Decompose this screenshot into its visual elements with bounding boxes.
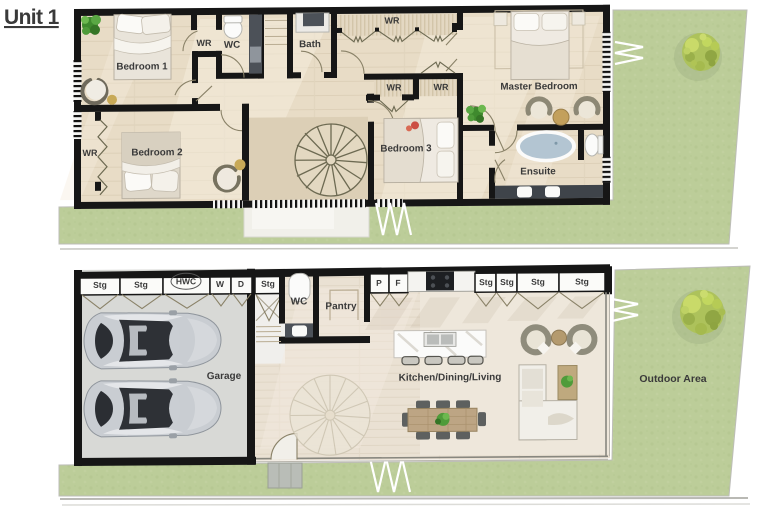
- svg-text:Master Bedroom: Master Bedroom: [500, 81, 578, 93]
- svg-text:WR: WR: [387, 82, 402, 92]
- svg-text:WR: WR: [434, 82, 449, 92]
- svg-text:Stg: Stg: [93, 280, 107, 290]
- svg-text:WR: WR: [385, 15, 400, 25]
- svg-text:Stg: Stg: [479, 277, 493, 287]
- svg-text:Ensuite: Ensuite: [520, 166, 556, 177]
- svg-text:Outdoor Area: Outdoor Area: [639, 373, 706, 385]
- svg-text:Bedroom 2: Bedroom 2: [131, 147, 183, 158]
- svg-text:Stg: Stg: [531, 277, 545, 287]
- svg-text:Bedroom 3: Bedroom 3: [380, 143, 432, 154]
- svg-text:WR: WR: [83, 148, 98, 158]
- svg-text:HWC: HWC: [176, 276, 196, 286]
- svg-text:WC: WC: [291, 296, 308, 307]
- svg-text:WC: WC: [224, 40, 240, 51]
- svg-text:F: F: [395, 278, 400, 288]
- svg-text:Bedroom 1: Bedroom 1: [116, 61, 168, 72]
- svg-text:Pantry: Pantry: [325, 301, 357, 312]
- svg-text:D: D: [238, 279, 244, 289]
- svg-text:Bath: Bath: [299, 39, 321, 50]
- svg-text:Kitchen/Dining/Living: Kitchen/Dining/Living: [399, 372, 502, 384]
- svg-text:Stg: Stg: [134, 279, 148, 289]
- svg-text:Stg: Stg: [261, 279, 275, 289]
- svg-text:P: P: [376, 278, 382, 288]
- svg-text:Unit 1: Unit 1: [4, 6, 60, 29]
- svg-text:W: W: [216, 279, 225, 289]
- svg-text:Stg: Stg: [500, 277, 514, 287]
- svg-text:Garage: Garage: [207, 371, 242, 382]
- svg-text:Stg: Stg: [575, 276, 589, 286]
- svg-text:WR: WR: [197, 38, 212, 48]
